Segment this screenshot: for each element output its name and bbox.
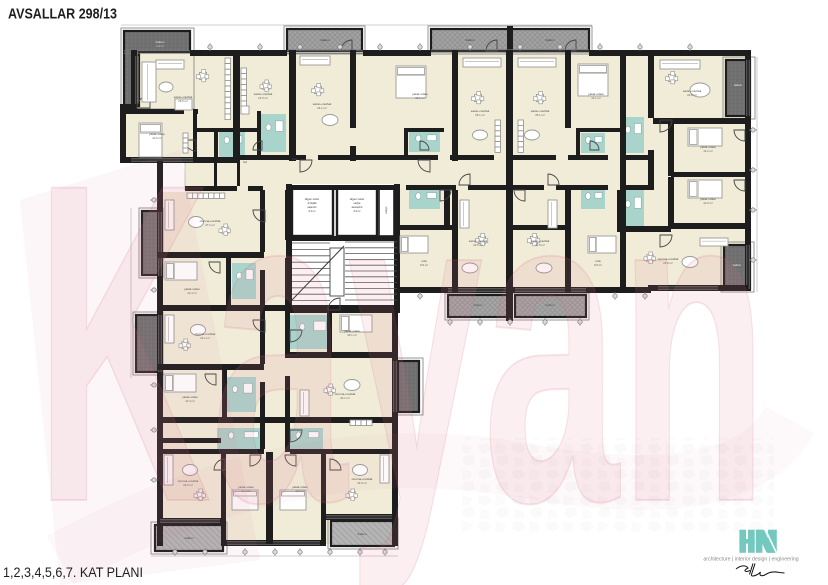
svg-text:AVSALLAR 298/13: AVSALLAR 298/13 — [8, 6, 117, 23]
svg-text:4.1 m²: 4.1 m² — [156, 44, 163, 48]
svg-text:balkon: balkon — [321, 38, 330, 42]
svg-text:balkon: balkon — [734, 83, 743, 87]
svg-text:architecture | interior design: architecture | interior design | enginee… — [703, 557, 798, 563]
svg-text:balkon: balkon — [156, 40, 165, 44]
svg-text:balkon: balkon — [546, 38, 555, 42]
svg-text:Kayan: Kayan — [35, 90, 768, 585]
svg-text:1,2,3,4,5,6,7. KAT PLANI: 1,2,3,4,5,6,7. KAT PLANI — [3, 564, 143, 580]
svg-text:balkon: balkon — [466, 38, 475, 42]
